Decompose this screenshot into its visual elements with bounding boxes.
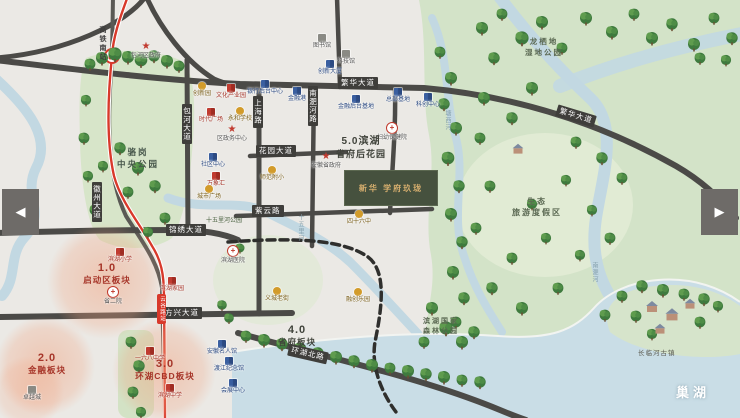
poi-school: 师范附小 (244, 166, 300, 182)
building-icon (318, 34, 326, 42)
road-label-huayuan: 花园大道 (256, 145, 296, 157)
star-icon: ★ (228, 125, 237, 135)
poi-museum: 安徽名人馆 (194, 340, 250, 356)
poi-hospital: +滨湖医院 (205, 245, 261, 265)
poi-library: 图书馆 (294, 34, 350, 50)
poi-memorial: 渡江纪念馆 (201, 357, 257, 373)
building-icon (225, 357, 233, 365)
project-badge: 新华 学府玖珑 (344, 170, 438, 206)
building-icon (166, 384, 174, 392)
zone-2-label: 2.0 金融板块 (12, 352, 82, 376)
road-label-fanhua: 繁华大道 (338, 77, 378, 89)
zone-4-label: 4.0 省府板块 (262, 324, 332, 348)
star-icon: ★ (142, 42, 151, 52)
lake-label: 巢湖 (676, 382, 710, 401)
school-icon (268, 166, 276, 174)
map-carousel-slide: ◀ ▶ 繁华大道 繁华大道 花园大道 紫云路 锦绣大道 方兴大道 环湖北路 徽州… (0, 0, 740, 418)
road-label-ziyun: 紫云路 (252, 205, 284, 217)
building-icon (116, 248, 124, 256)
cross-icon: + (107, 286, 119, 298)
poi-old-street: 义城老街 (249, 287, 305, 303)
poi-school: 四十六中 (331, 210, 387, 226)
poi-government: ★区政务中心 (204, 125, 260, 143)
prev-button[interactable]: ◀ (2, 189, 39, 235)
school-icon (236, 107, 244, 115)
poi-office: 创新大厦 (302, 60, 358, 76)
river-park-label: 十五里河公园 (206, 218, 242, 225)
poi-convention-center: 会展中心 (205, 379, 261, 395)
building-icon (326, 60, 334, 68)
metro-station-tag: 云谷路站 (157, 294, 166, 324)
building-icon (168, 277, 176, 285)
poi-plaza: 城市广场 (181, 185, 237, 201)
river-label-shiwuli: 十五里河 (296, 214, 305, 242)
zone-5-label: 5.0滨湖 省府后花园 (322, 132, 400, 160)
cross-icon: + (227, 245, 239, 257)
poi-district: 卓越城 (4, 386, 60, 402)
poi-office: 金融港 (269, 87, 325, 103)
building-icon (293, 87, 301, 95)
school-icon (355, 210, 363, 218)
building-icon (424, 93, 432, 101)
building-icon (212, 172, 220, 180)
river-label-nanfei: 南淝河 (590, 262, 599, 283)
poi-school: 永和学校 (212, 107, 268, 123)
hsr-station-label: 高铁南站 (97, 26, 107, 62)
ancient-town-label: 长临河古镇 (638, 350, 676, 358)
wetland-park-label: 龙栖地 湿地公园 (516, 36, 572, 58)
poi-school: 滨湖中学 (142, 384, 198, 400)
central-park-label: 骆岗 中央公园 (112, 146, 164, 170)
building-icon (28, 386, 36, 394)
project-name: 新华 学府玖珑 (359, 183, 423, 194)
road-label-jinxiu: 锦绣大道 (166, 224, 206, 236)
building-icon (227, 84, 235, 92)
building-icon (229, 379, 237, 387)
building-icon (342, 50, 350, 58)
eco-resort-label: 生态 旅游度假区 (506, 196, 568, 218)
landmark-icon (354, 288, 362, 296)
poi-theme-park: 融创乐园 (330, 288, 386, 304)
river-label-tangxi: 塘西河 (443, 110, 452, 131)
next-button[interactable]: ▶ (701, 189, 738, 235)
poi-hospital: +省二院 (85, 286, 141, 306)
building-icon (218, 340, 226, 348)
building-icon (146, 347, 154, 355)
poi-office: 社区中心 (185, 153, 241, 169)
zone-1-label: 1.0 启动区板块 (72, 262, 142, 286)
poi-office: 科创中心 (400, 93, 456, 109)
building-icon (261, 80, 269, 88)
landmark-icon (273, 287, 281, 295)
poi-government: ★包河区政府 (118, 42, 174, 60)
building-icon (352, 95, 360, 103)
road-label-huizhou: 徽州大道 (92, 182, 102, 222)
forest-park-label: 滨湖国家 森林公园 (412, 316, 470, 336)
landmark-icon (205, 185, 213, 193)
building-icon (209, 153, 217, 161)
poi-residence: 滨湖家园 (144, 277, 200, 293)
zone-3-label: 3.0 环湖CBD板块 (126, 358, 204, 382)
road-label-fangxing: 方兴大道 (162, 307, 202, 319)
